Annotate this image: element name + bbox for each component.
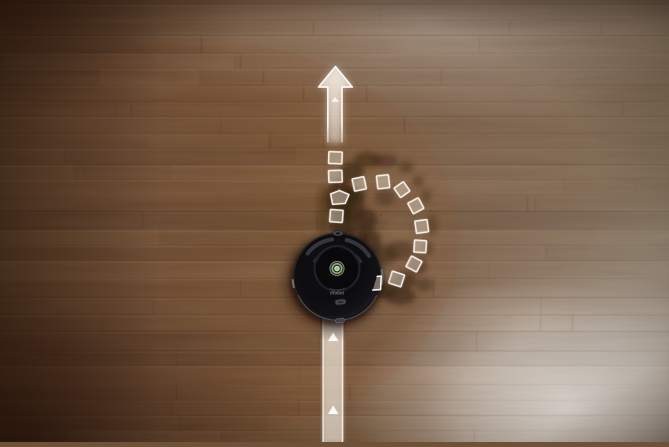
svg-text:iRobot: iRobot xyxy=(330,291,344,296)
